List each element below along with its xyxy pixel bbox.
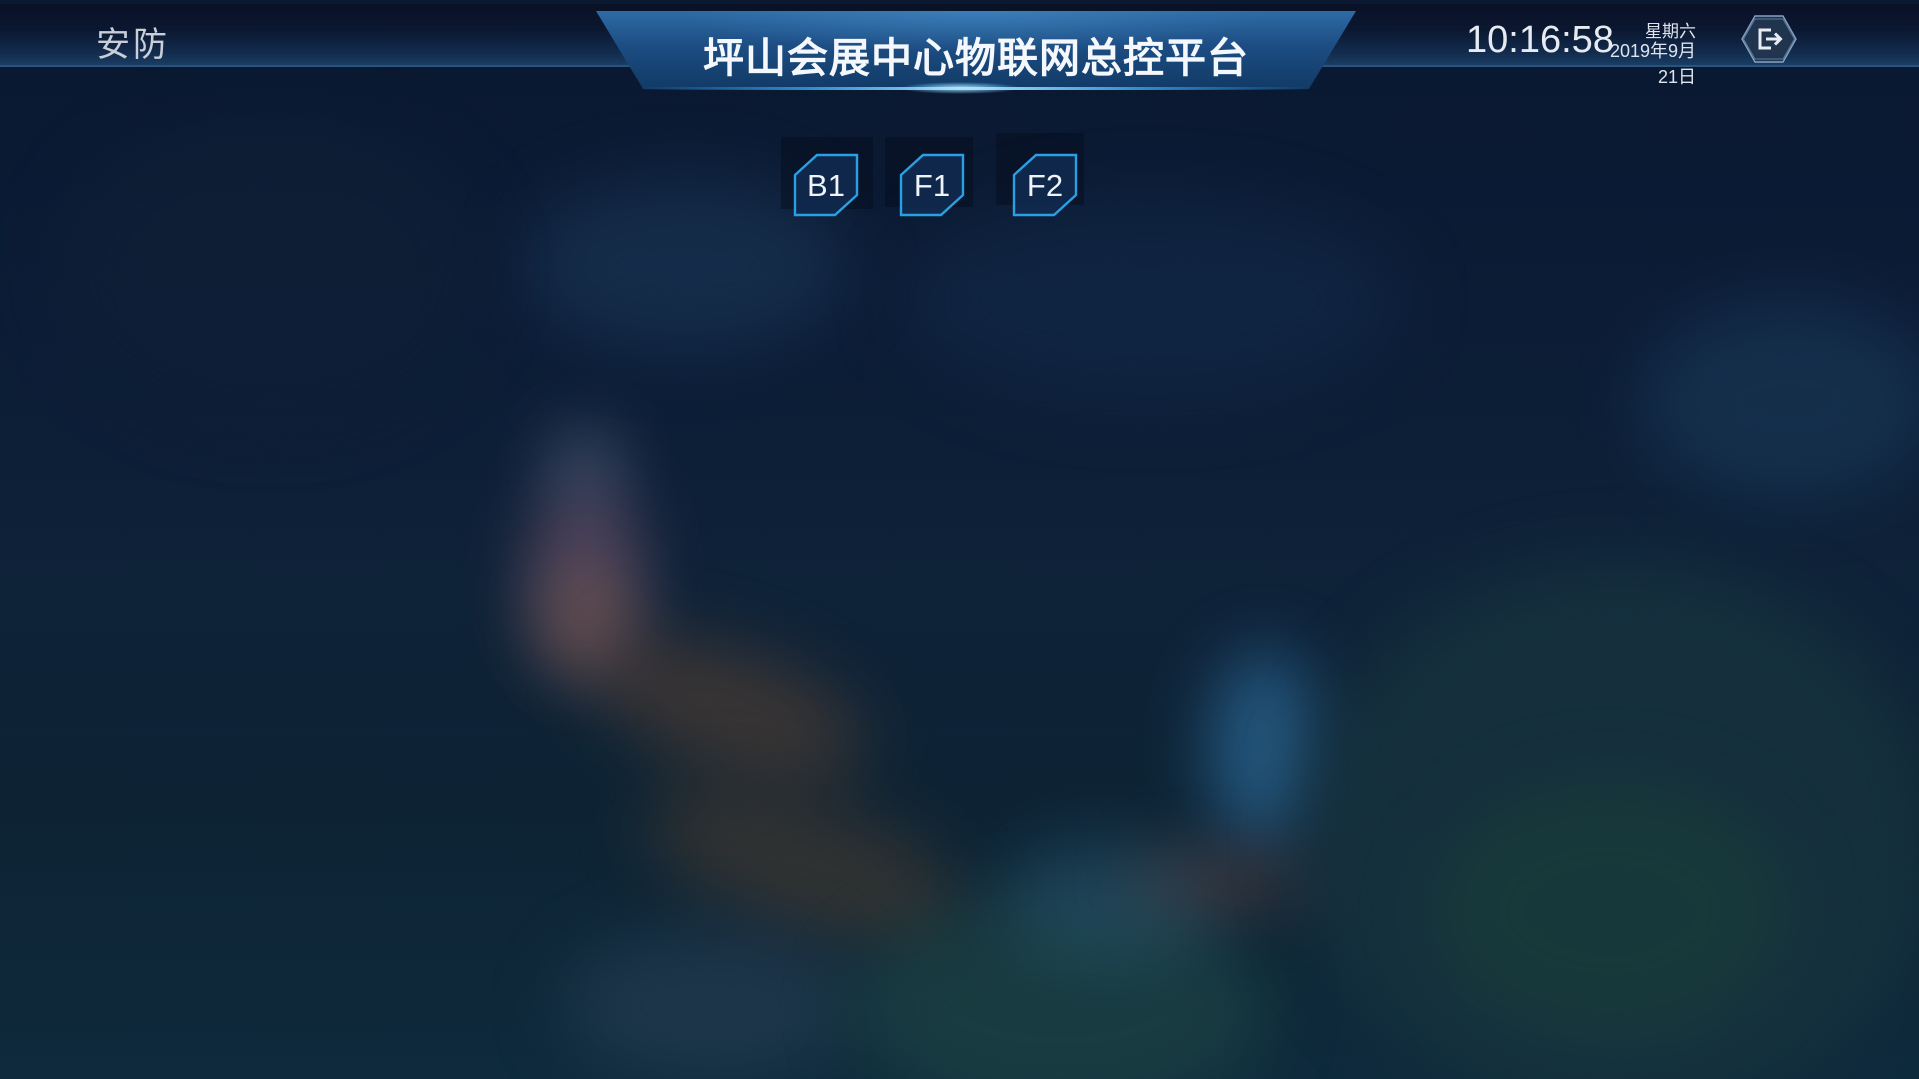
svg-text:F2: F2 — [1027, 168, 1063, 203]
svg-text:B1: B1 — [807, 168, 845, 203]
svg-text:F1: F1 — [914, 168, 950, 203]
